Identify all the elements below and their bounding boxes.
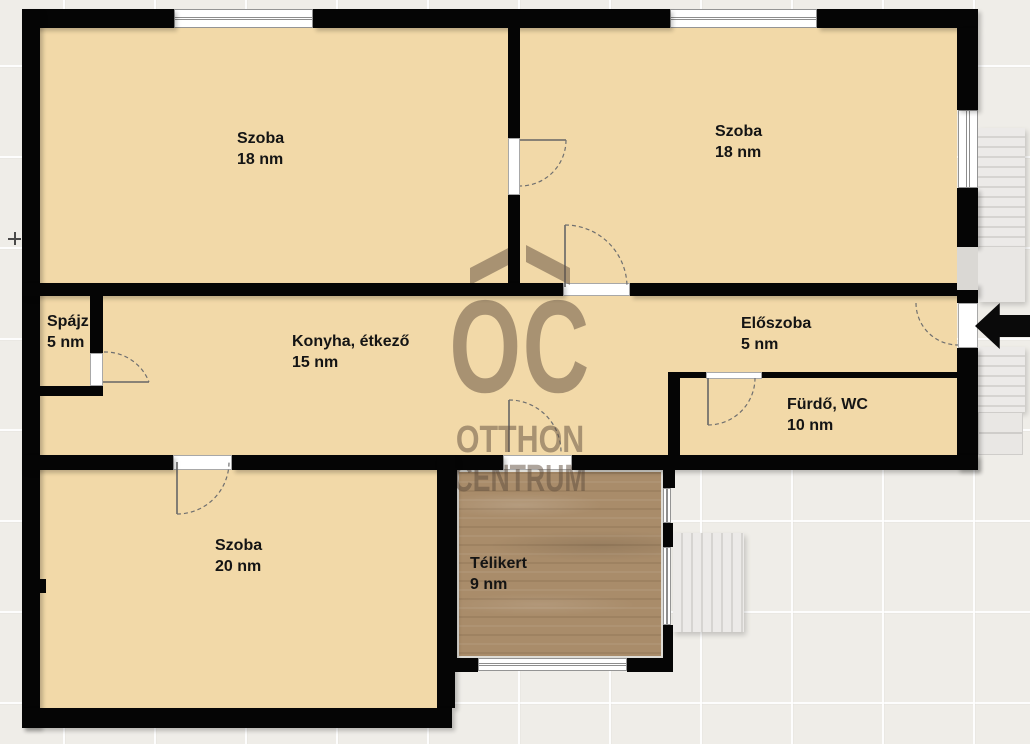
room-area: 5 nm — [741, 334, 811, 355]
wall-top-2 — [313, 9, 670, 28]
wall-mid-horizontal-1 — [22, 283, 563, 296]
room-name: Konyha, étkező — [292, 331, 409, 352]
wall-left-chimney-notch — [40, 579, 46, 593]
wall-telikert-right-top — [663, 465, 675, 488]
room-name: Szoba — [715, 121, 762, 142]
crosshair-plus-icon — [8, 232, 21, 245]
wall-right-2 — [957, 188, 978, 247]
room-name: Fürdő, WC — [787, 394, 868, 415]
wall-left — [22, 9, 40, 728]
room-area: 5 nm — [47, 332, 89, 353]
room-area: 9 nm — [470, 574, 527, 595]
room-name: Szoba — [215, 535, 262, 556]
wall-telikert-right-bottom — [663, 625, 673, 658]
floor-plan-canvas: OC OTTHON CENTRUM Szoba 18 nm Szoba 18 n… — [0, 0, 1030, 744]
room-area: 10 nm — [787, 415, 868, 436]
wall-telikert-corner-br — [627, 658, 673, 672]
wall-telikert-right-mid — [663, 523, 673, 547]
room-area: 20 nm — [215, 556, 262, 577]
room-label-szoba-top-left: Szoba 18 nm — [237, 128, 284, 170]
room-label-szoba-top-right: Szoba 18 nm — [715, 121, 762, 163]
wall-band-bottom-3 — [572, 455, 978, 470]
wall-top-1 — [22, 9, 174, 28]
room-label-furdo: Fürdő, WC 10 nm — [787, 394, 868, 436]
wall-furdo-top-1 — [668, 372, 706, 378]
watermark-monogram: OC — [429, 295, 611, 399]
wall-telikert-corner-bl — [443, 658, 478, 672]
watermark-otthon: OTTHON — [416, 423, 624, 457]
room-name: Télikert — [470, 553, 527, 574]
wall-divider-szoba-1 — [508, 28, 520, 138]
room-area: 18 nm — [237, 149, 284, 170]
room-name: Előszoba — [741, 313, 811, 334]
wall-furdo-top-2 — [762, 372, 957, 378]
wall-telikert-left — [448, 468, 457, 658]
room-label-konyha: Konyha, étkező 15 nm — [292, 331, 409, 373]
room-name: Szoba — [237, 128, 284, 149]
wall-furdo-left — [668, 372, 680, 455]
wall-right-4 — [957, 348, 978, 470]
room-label-eloszoba: Előszoba 5 nm — [741, 313, 811, 355]
room-label-szoba-bottom: Szoba 20 nm — [215, 535, 262, 577]
room-label-telikert: Télikert 9 nm — [470, 553, 527, 595]
wall-right-1 — [957, 28, 978, 110]
wall-right-3 — [957, 290, 978, 303]
room-area: 15 nm — [292, 352, 409, 373]
room-name: Spájz — [47, 311, 89, 332]
wall-divider-szoba-2 — [508, 195, 520, 296]
room-label-spajz: Spájz 5 nm — [47, 311, 89, 353]
room-area: 18 nm — [715, 142, 762, 163]
wall-bottom — [22, 708, 452, 728]
stair-landing-opening — [957, 247, 978, 290]
wall-spajz-right — [90, 296, 103, 353]
wall-mid-horizontal-2 — [630, 283, 978, 296]
wall-top-3 — [817, 9, 978, 28]
wall-spajz-bottom — [40, 386, 103, 396]
wall-band-bottom-1 — [22, 455, 173, 470]
wall-band-bottom-2 — [232, 455, 503, 470]
